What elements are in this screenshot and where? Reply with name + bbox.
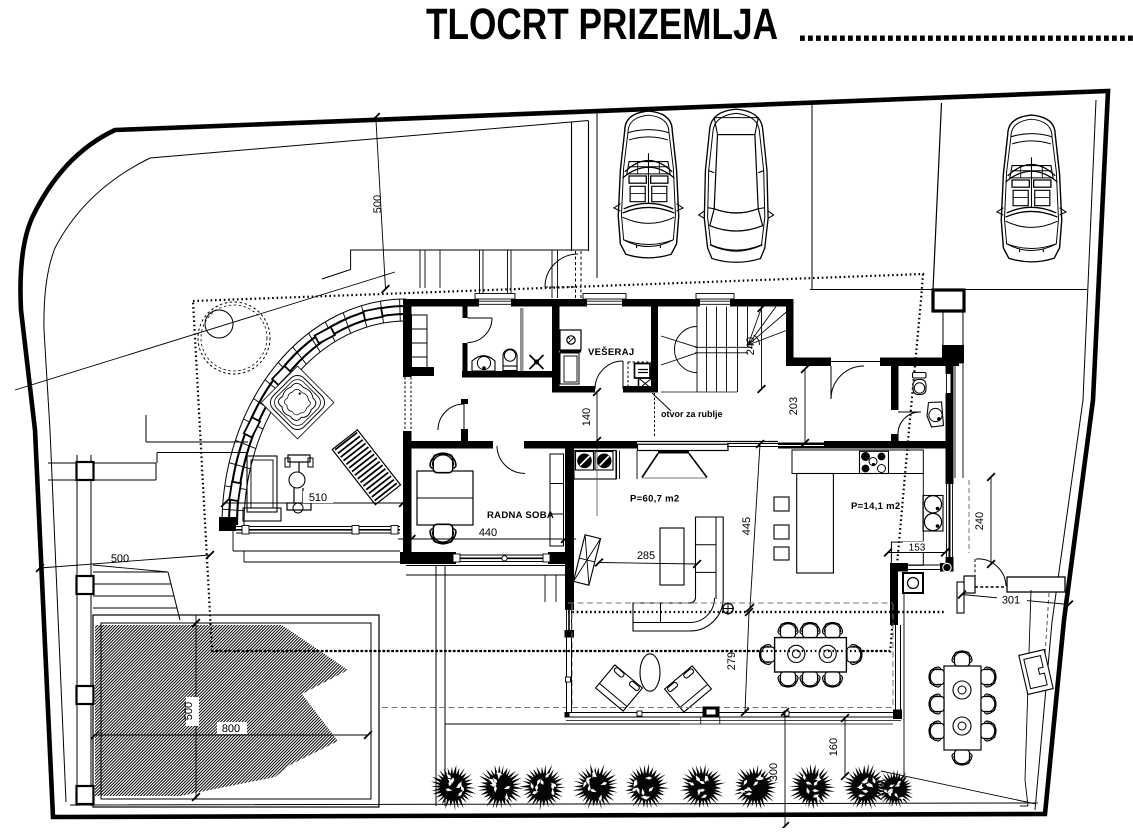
svg-text:RADNA SOBA: RADNA SOBA — [487, 510, 554, 521]
svg-text:440: 440 — [479, 527, 497, 539]
svg-text:203: 203 — [788, 397, 800, 415]
svg-text:VEŠERAJ: VEŠERAJ — [588, 346, 634, 358]
svg-text:800: 800 — [222, 723, 240, 735]
svg-text:153: 153 — [909, 543, 926, 554]
svg-text:500: 500 — [372, 195, 384, 213]
svg-text:500: 500 — [183, 702, 195, 720]
svg-text:P=14,1 m2: P=14,1 m2 — [851, 501, 900, 512]
svg-text:510: 510 — [309, 492, 327, 504]
svg-text:285: 285 — [637, 550, 655, 562]
svg-text:301: 301 — [1002, 595, 1020, 607]
svg-text:160: 160 — [828, 738, 840, 756]
svg-text:240: 240 — [745, 337, 757, 355]
svg-text:445: 445 — [741, 517, 753, 535]
svg-text:P=60,7 m2: P=60,7 m2 — [630, 494, 679, 505]
svg-text:140: 140 — [581, 408, 593, 426]
svg-text:279: 279 — [726, 652, 738, 670]
svg-text:240: 240 — [974, 512, 986, 530]
svg-text:500: 500 — [111, 553, 129, 565]
svg-text:TLOCRT PRIZEMLJA: TLOCRT PRIZEMLJA — [426, 0, 778, 49]
svg-text:300: 300 — [768, 763, 780, 781]
svg-text:otvor za rublje: otvor za rublje — [661, 409, 723, 419]
